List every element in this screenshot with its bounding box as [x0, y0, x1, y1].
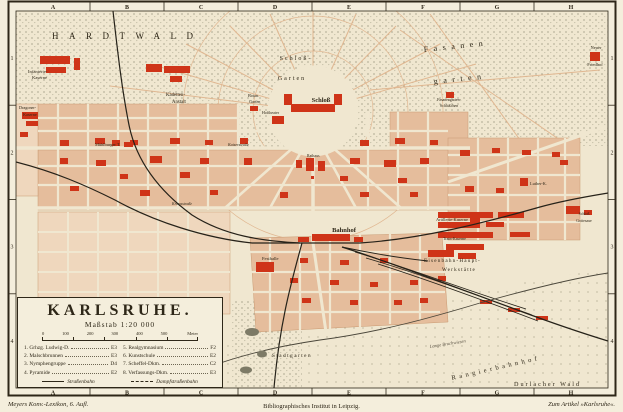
grid-letter: F — [421, 5, 425, 11]
map-label: Schloß — [312, 97, 331, 104]
map-label: Garten — [249, 99, 261, 104]
solid-line-icon — [42, 381, 64, 382]
legend-item: 2. MalschbrunnenE3 — [24, 352, 117, 360]
legend-item: 4. PyramideE2 — [24, 369, 117, 377]
legend-item: 3. NymphengruppeD4 — [24, 360, 117, 368]
tram-legend-label: Dampfstraßenbahn — [156, 379, 198, 385]
map-label: Artillerie-Kaserne — [436, 217, 468, 222]
map-label: Kaserne — [32, 75, 47, 80]
map-label: Infanterie- — [28, 69, 48, 74]
grid-letter: B — [125, 5, 129, 11]
map-label: Kaserne — [23, 112, 37, 117]
map-label: Garten — [278, 76, 306, 82]
grid-letter: C — [199, 5, 203, 11]
map-label: Schloß- — [280, 55, 313, 62]
map-label: Schloß — [579, 212, 590, 216]
map-label: Stadtgarten — [272, 353, 312, 359]
grid-number: 1 — [11, 56, 14, 62]
map-label: Anstalt — [172, 100, 187, 105]
dashed-line-icon — [131, 381, 153, 382]
map-label: Kriegsstraße — [171, 202, 192, 206]
legend-item: 8. Verfassungs-Dkm.E3 — [123, 369, 216, 377]
grid-letter: A — [51, 391, 56, 397]
map-label: Schlößchen — [440, 104, 458, 108]
map-label: Train-Kaserne — [443, 236, 466, 241]
map-label: Dragoner- — [19, 105, 37, 110]
map-label: Durlacher Wald — [514, 381, 581, 388]
map-label: Rathaus — [307, 154, 320, 158]
grid-letter: G — [495, 391, 500, 397]
map-page: HARDTWALDInfanterie-KaserneKadetten-Anst… — [0, 0, 623, 412]
grid-letter: D — [273, 5, 278, 11]
grid-number: 3 — [11, 245, 14, 251]
legend-item: 6. KunstschuleE2 — [123, 352, 216, 360]
grid-number: 2 — [11, 150, 14, 156]
map-label: Hoftheater — [262, 110, 280, 115]
map-scale-label: Maßstab 1:20 000 — [24, 320, 216, 329]
grid-letter: B — [125, 391, 129, 397]
imprint-institute: Bibliographisches Institut in Leipzig. — [0, 403, 623, 410]
grid-letter: E — [347, 5, 351, 11]
map-label: Neuer — [591, 45, 602, 50]
legend-item: 5. RealgymnasiumF2 — [123, 344, 216, 352]
map-label: Mühlburger T. — [95, 142, 120, 147]
grid-letter: C — [199, 391, 203, 397]
map-label: Kadetten- — [166, 93, 185, 98]
map-label: Festhalle — [262, 256, 279, 261]
map-label: Kaiserstraße — [227, 142, 249, 147]
tram-legend-item: Straßenbahn — [42, 379, 95, 385]
legend-box: KARLSRUHE. Maßstab 1:20 000 010020030040… — [17, 297, 223, 388]
grid-number: 4 — [611, 339, 614, 345]
tram-legend: StraßenbahnDampfstraßenbahn — [24, 379, 216, 385]
grid-letter: H — [569, 391, 574, 397]
legend-item: 7. Scheffel-Dkm.C2 — [123, 360, 216, 368]
map-label: Botan. — [248, 93, 259, 98]
grid-letter: F — [421, 391, 425, 397]
map-label: Bahnhof — [332, 227, 357, 234]
grid-number: 1 — [611, 56, 614, 62]
grid-letter: E — [347, 391, 351, 397]
map-label: Luther-K. — [530, 181, 547, 186]
grid-letter: H — [569, 5, 574, 11]
legend-list: 1. Grhzg. Ludwig-D.E32. MalschbrunnenE33… — [24, 344, 216, 377]
map-label: Gottesaue — [576, 219, 592, 223]
legend-item: 1. Grhzg. Ludwig-D.E3 — [24, 344, 117, 352]
map-label: Fasanengarten- — [437, 98, 461, 102]
grid-number: 3 — [611, 245, 614, 251]
grid-number: 2 — [611, 150, 614, 156]
map-label: Eisenbahn-Haupt- — [424, 258, 481, 264]
tram-legend-item: Dampfstraßenbahn — [131, 379, 198, 385]
grid-letter: G — [495, 5, 500, 11]
map-label: Werkstätte — [442, 267, 476, 273]
scale-bar: 0100200300400500Meter — [42, 331, 198, 341]
grid-number: 4 — [11, 339, 14, 345]
map-title: KARLSRUHE. — [24, 302, 216, 319]
tram-legend-label: Straßenbahn — [67, 379, 95, 385]
imprint-article: Zum Artikel »Karlsruhe«. — [548, 401, 615, 408]
scale-line — [42, 336, 198, 341]
grid-letter: D — [273, 391, 278, 397]
map-label: HARDTWALD — [52, 31, 204, 41]
map-label: Friedhof — [587, 62, 603, 67]
grid-letter: A — [51, 5, 56, 11]
